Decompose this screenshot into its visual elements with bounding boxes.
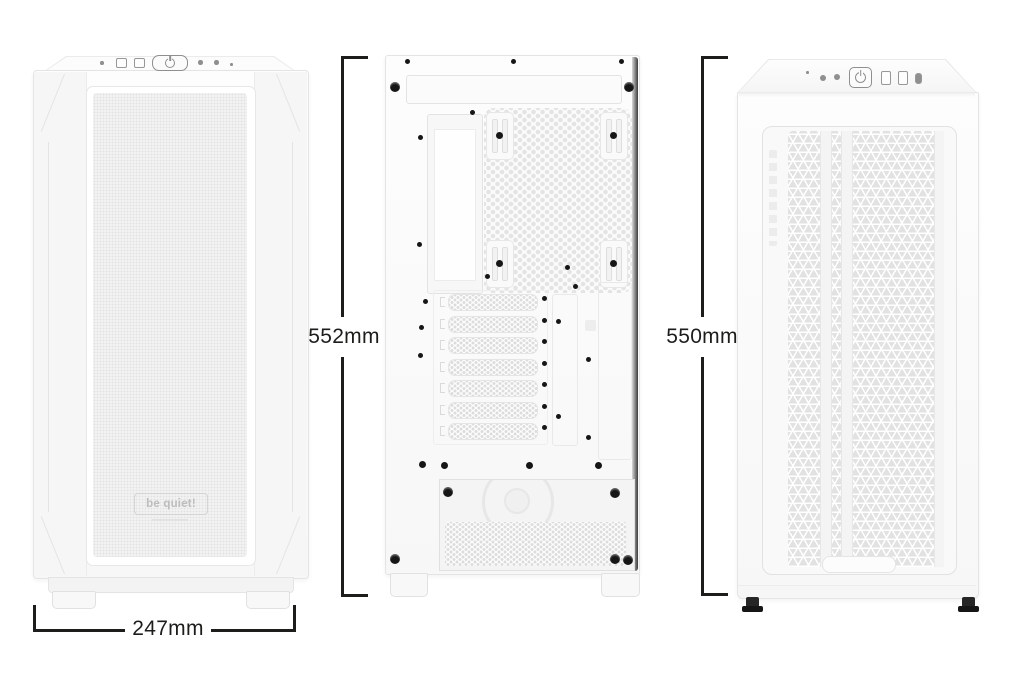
dimension-end-tick (701, 56, 728, 59)
product-dimension-diagram: be quiet! 247mm (0, 0, 1024, 683)
dimension-end-tick (701, 593, 728, 596)
dimension-line (701, 357, 704, 596)
dimension-height-550: 550mm (0, 0, 1024, 683)
dimension-height-label: 550mm (657, 326, 747, 348)
dimension-line (701, 56, 704, 317)
